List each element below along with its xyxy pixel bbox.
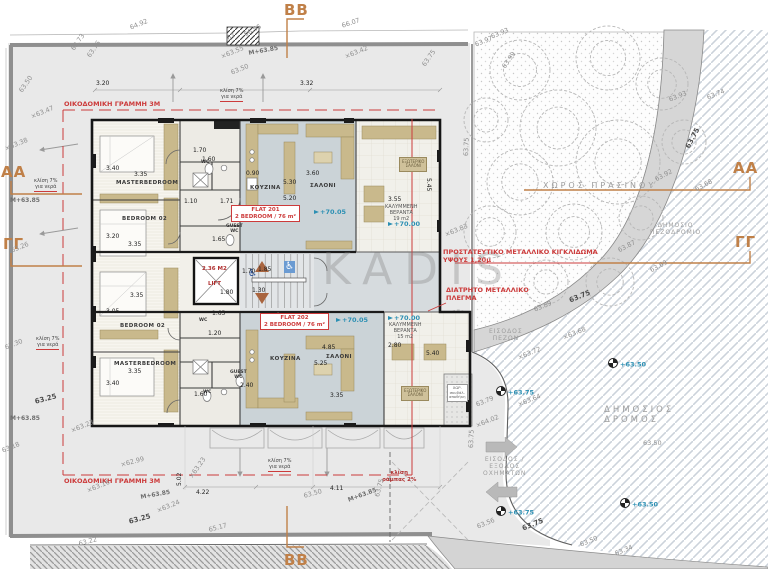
ramp-slope-note: κλίση ράμπας 2% — [382, 470, 416, 483]
dim-label: 1.20 — [208, 330, 221, 337]
dim-label: 1.65 — [212, 310, 225, 317]
outdoor-lounge-label: ΕΞΩΤΕΡΙΚΟ ΣΑΛΟΝΙ — [399, 157, 427, 172]
bmk-label: M+63.85 — [10, 415, 40, 422]
elev-label: 63.93 — [490, 27, 510, 41]
elev-label: 63.30 — [4, 338, 24, 352]
elev-label: 63.69 — [649, 259, 669, 275]
slope-note: κλίση 7% για νερά — [268, 458, 291, 472]
bmk-label: M+63.85 — [248, 45, 279, 57]
elev-label: 63.56 — [476, 517, 496, 531]
dim-label: 1.71 — [220, 198, 233, 205]
room-label: MASTERBEDROOM — [114, 361, 176, 368]
room-label: WC — [199, 318, 207, 323]
elev-label: 63.92 — [654, 168, 674, 184]
labels-layer: BBBBAAΓΓAAΓΓΟΙΚΟΔΟΜΙΚΗ ΓΡΑΜΜΗ 3ΜΟΙΚΟΔΟΜΙ… — [0, 0, 768, 569]
dim-label: 1.70 — [193, 147, 206, 154]
room-label: ΚΟΥΖΙΝΑ — [250, 185, 281, 192]
elev-label: 63.50 — [579, 535, 599, 549]
room-label: BEDROOM 02 — [120, 323, 165, 330]
dim-label: 1.30 — [252, 287, 265, 294]
elevb-label: 63.75 — [684, 126, 702, 150]
elev-label: 63.18 — [1, 441, 21, 455]
elev-label: 63.75 — [463, 137, 471, 156]
dim-label: 3.35 — [330, 392, 343, 399]
elev-label: 66.07 — [341, 17, 361, 30]
dim-label: 3.40 — [106, 380, 119, 387]
elev-label: ×63.24 — [156, 499, 181, 515]
elevb-label: 63.75 — [521, 517, 545, 533]
section-marker-aa-right: AA — [733, 159, 758, 177]
room-label: GUEST WC — [226, 224, 243, 235]
elev-label: 63.87 — [617, 239, 637, 255]
dim-label: 4.11 — [330, 485, 343, 492]
elevb-label: 63.25 — [34, 392, 58, 406]
dim-label: 3.40 — [106, 165, 119, 172]
vehicle-entrance-label: ΕΙΣΟΔΟΣ / ΕΞΟΔΟΣ ΟΧΗΜΑΤΩΝ — [483, 456, 526, 478]
dim-label: 3.05 — [106, 308, 119, 315]
elev-label: ×63.83 — [444, 223, 469, 239]
elev-label: 63.50 — [230, 63, 250, 77]
public-sidewalk-label: ΔΗΜΟΣΙΟ ΠΕΖΟΔΡΟΜΙΟ — [650, 222, 701, 236]
railing-note: ΠΡΟΣΤΑΤΕΥΤΙΚΟ ΜΕΤΑΛΛΙΚΟ ΚΙΓΚΛΙΔΩΜΑ ΥΨΟΥΣ… — [443, 249, 598, 265]
elev-label: 67 — [226, 32, 237, 43]
elev-label: 63.99 — [501, 51, 518, 71]
elev-label: 64.92 — [129, 18, 149, 32]
elev-label: 66.95 — [243, 23, 263, 39]
section-marker-bb-top: BB — [284, 1, 309, 19]
elev-label: ×62.99 — [120, 456, 145, 470]
building-line-note-top: ΟΙΚΟΔΟΜΙΚΗ ΓΡΑΜΜΗ 3Μ — [64, 101, 160, 109]
dim-label: 3.35 — [134, 171, 147, 178]
elev-label: ×63.23 — [70, 419, 95, 435]
mesh-note: ΔΙΑΤΡΗΤΟ ΜΕΤΑΛΛΙΚΟ ΠΛΕΓΜΑ — [446, 287, 529, 303]
section-marker-aa-left: AA — [1, 163, 26, 181]
elev-label: 63.75 — [468, 429, 476, 448]
dim-label: 5.30 — [283, 179, 296, 186]
slope-note: κλίση 7% για νερά — [36, 336, 59, 350]
section-marker-gg-right: ΓΓ — [735, 233, 756, 251]
dim-label: 1.85 — [258, 266, 271, 273]
dim-label: 3.55 — [388, 196, 401, 203]
flat-201-label: FLAT 201 2 BEDROOM / 76 m² — [231, 205, 300, 222]
dim-label: 1.10 — [184, 198, 197, 205]
elev-label: 63.93 — [668, 90, 688, 104]
garbage-room-label: ΧΩΡ. σκυβάλ. αποθήκη — [447, 384, 468, 402]
elev-label: 63.50 — [643, 440, 662, 448]
pedestrian-entrance-label: ΕΙΣΟΔΟΣ ΠΕΖΩΝ — [489, 328, 523, 342]
veranda-label: ΚΑΛΥΜΜΕΝΗ ΒΕΡΑΝΤΑ 19 m2 — [385, 204, 417, 222]
dim-label: 0.90 — [246, 170, 259, 177]
elev-label: ×63.68 — [562, 326, 587, 342]
dim-label: 4.22 — [196, 489, 209, 496]
elev-label: ×63.72 — [517, 346, 542, 362]
public-road-label: ΔΗΜΟΣΙΟΣ ΔΡΟΜΟΣ — [604, 405, 674, 425]
dim-label: 2.80 — [388, 342, 401, 349]
slope-note: κλίση 7% για νερά — [220, 88, 243, 102]
elev-label: 63.68 — [694, 178, 714, 194]
level-marker: +70.05 — [336, 317, 368, 325]
elev-label: 63.89 — [533, 300, 553, 314]
dim-label: 1.80 — [220, 289, 233, 296]
lift-label: LIFT — [208, 281, 221, 288]
elev-label: 63.75 — [421, 49, 438, 69]
dim-label: 1.70 — [242, 268, 255, 275]
elev-label: ×63.55 — [220, 45, 245, 61]
elev-label: 63.50 — [18, 75, 35, 95]
dim-label: 5.25 — [314, 360, 327, 367]
dim-label: 3.35 — [128, 368, 141, 375]
slope-note: κλίση 7% για νερά — [34, 178, 57, 192]
survey-marker: +63.50 — [608, 358, 646, 369]
elev-label: 63.79 — [475, 395, 495, 409]
site-plan-canvas: KADIS BBBBAAΓΓAAΓΓΟΙΚΟΔΟΜΙΚΗ ΓΡΑΜΜΗ 3ΜΟΙ… — [0, 0, 768, 569]
dim-label: 4.85 — [322, 344, 335, 351]
dim-label: 5.40 — [426, 350, 439, 357]
building-line-note-bottom: ΟΙΚΟΔΟΜΙΚΗ ΓΡΑΜΜΗ 3Μ — [64, 478, 160, 486]
elev-label: 65.17 — [208, 522, 228, 534]
dim-label: 3.20 — [96, 80, 109, 87]
section-marker-bb-bottom: BB — [284, 551, 309, 569]
elev-label: 63.34 — [614, 544, 634, 558]
room-label: ΚΟΥΖΙΝΑ — [270, 356, 301, 363]
elev-label: ×63.47 — [30, 105, 55, 121]
veranda-label: ΚΑΛΥΜΜΕΝΗ ΒΕΡΑΝΤΑ 15 m2 — [389, 322, 421, 340]
lift-area-label: 2.36 Μ2 — [202, 266, 227, 273]
dim-label: 3.32 — [300, 80, 313, 87]
dim-label: 1.65 — [212, 236, 225, 243]
dim-label: 3.20 — [106, 233, 119, 240]
elev-label: 63.50 — [303, 488, 323, 500]
bmk-label: M+63.85 — [10, 197, 40, 204]
elev-label: ×63.38 — [4, 137, 29, 153]
outdoor-lounge-label: ΕΞΩΤΕΡΙΚΟ ΣΑΛΟΝΙ — [401, 386, 429, 401]
elev-label: ×63.23 — [188, 456, 208, 480]
dim-label: 2.40 — [240, 382, 253, 389]
level-marker: +70.05 — [314, 209, 346, 217]
dim-label: 3.35 — [130, 292, 143, 299]
dim-label: 3.35 — [128, 241, 141, 248]
wheelchair-icon: ♿ — [284, 261, 295, 273]
room-label: GUEST WC — [230, 370, 247, 381]
elevb-label: 63.75 — [568, 289, 592, 305]
room-label: ΣΑΛΟΝΙ — [310, 183, 336, 190]
elev-label: ×63.42 — [344, 45, 369, 61]
level-marker: +70.00 — [388, 221, 420, 229]
green-space-label: ΧΩΡΟΣ ΠΡΑΣΙΝΟΥ — [543, 181, 656, 191]
dim-label: 1.60 — [202, 156, 215, 163]
bmk-label: M+63.85 — [140, 489, 171, 501]
dim-label: 5.45 — [425, 178, 432, 191]
dim-label: 1.60 — [194, 391, 207, 398]
elev-label: 63.74 — [706, 88, 726, 102]
elev-label: 63.73 — [70, 33, 87, 53]
dim-label: 5.02 — [176, 473, 183, 486]
flat-202-label: FLAT 202 2 BEDROOM / 76 m² — [260, 313, 329, 330]
room-label: MASTERBEDROOM — [116, 180, 178, 187]
elev-label: 63.22 — [78, 536, 98, 548]
elev-label: ×64.02 — [475, 414, 500, 430]
survey-marker: +63.75 — [496, 506, 534, 517]
room-label: ΣΑΛΟΝΙ — [326, 354, 352, 361]
survey-marker: +63.50 — [620, 498, 658, 509]
elev-label: 63.76 — [86, 40, 103, 60]
elevb-label: 63.25 — [128, 512, 152, 526]
dim-label: 3.60 — [306, 170, 319, 177]
dim-label: 5.20 — [283, 195, 296, 202]
room-label: BEDROOM 02 — [122, 216, 167, 223]
elev-label: 63.75 — [374, 478, 386, 498]
